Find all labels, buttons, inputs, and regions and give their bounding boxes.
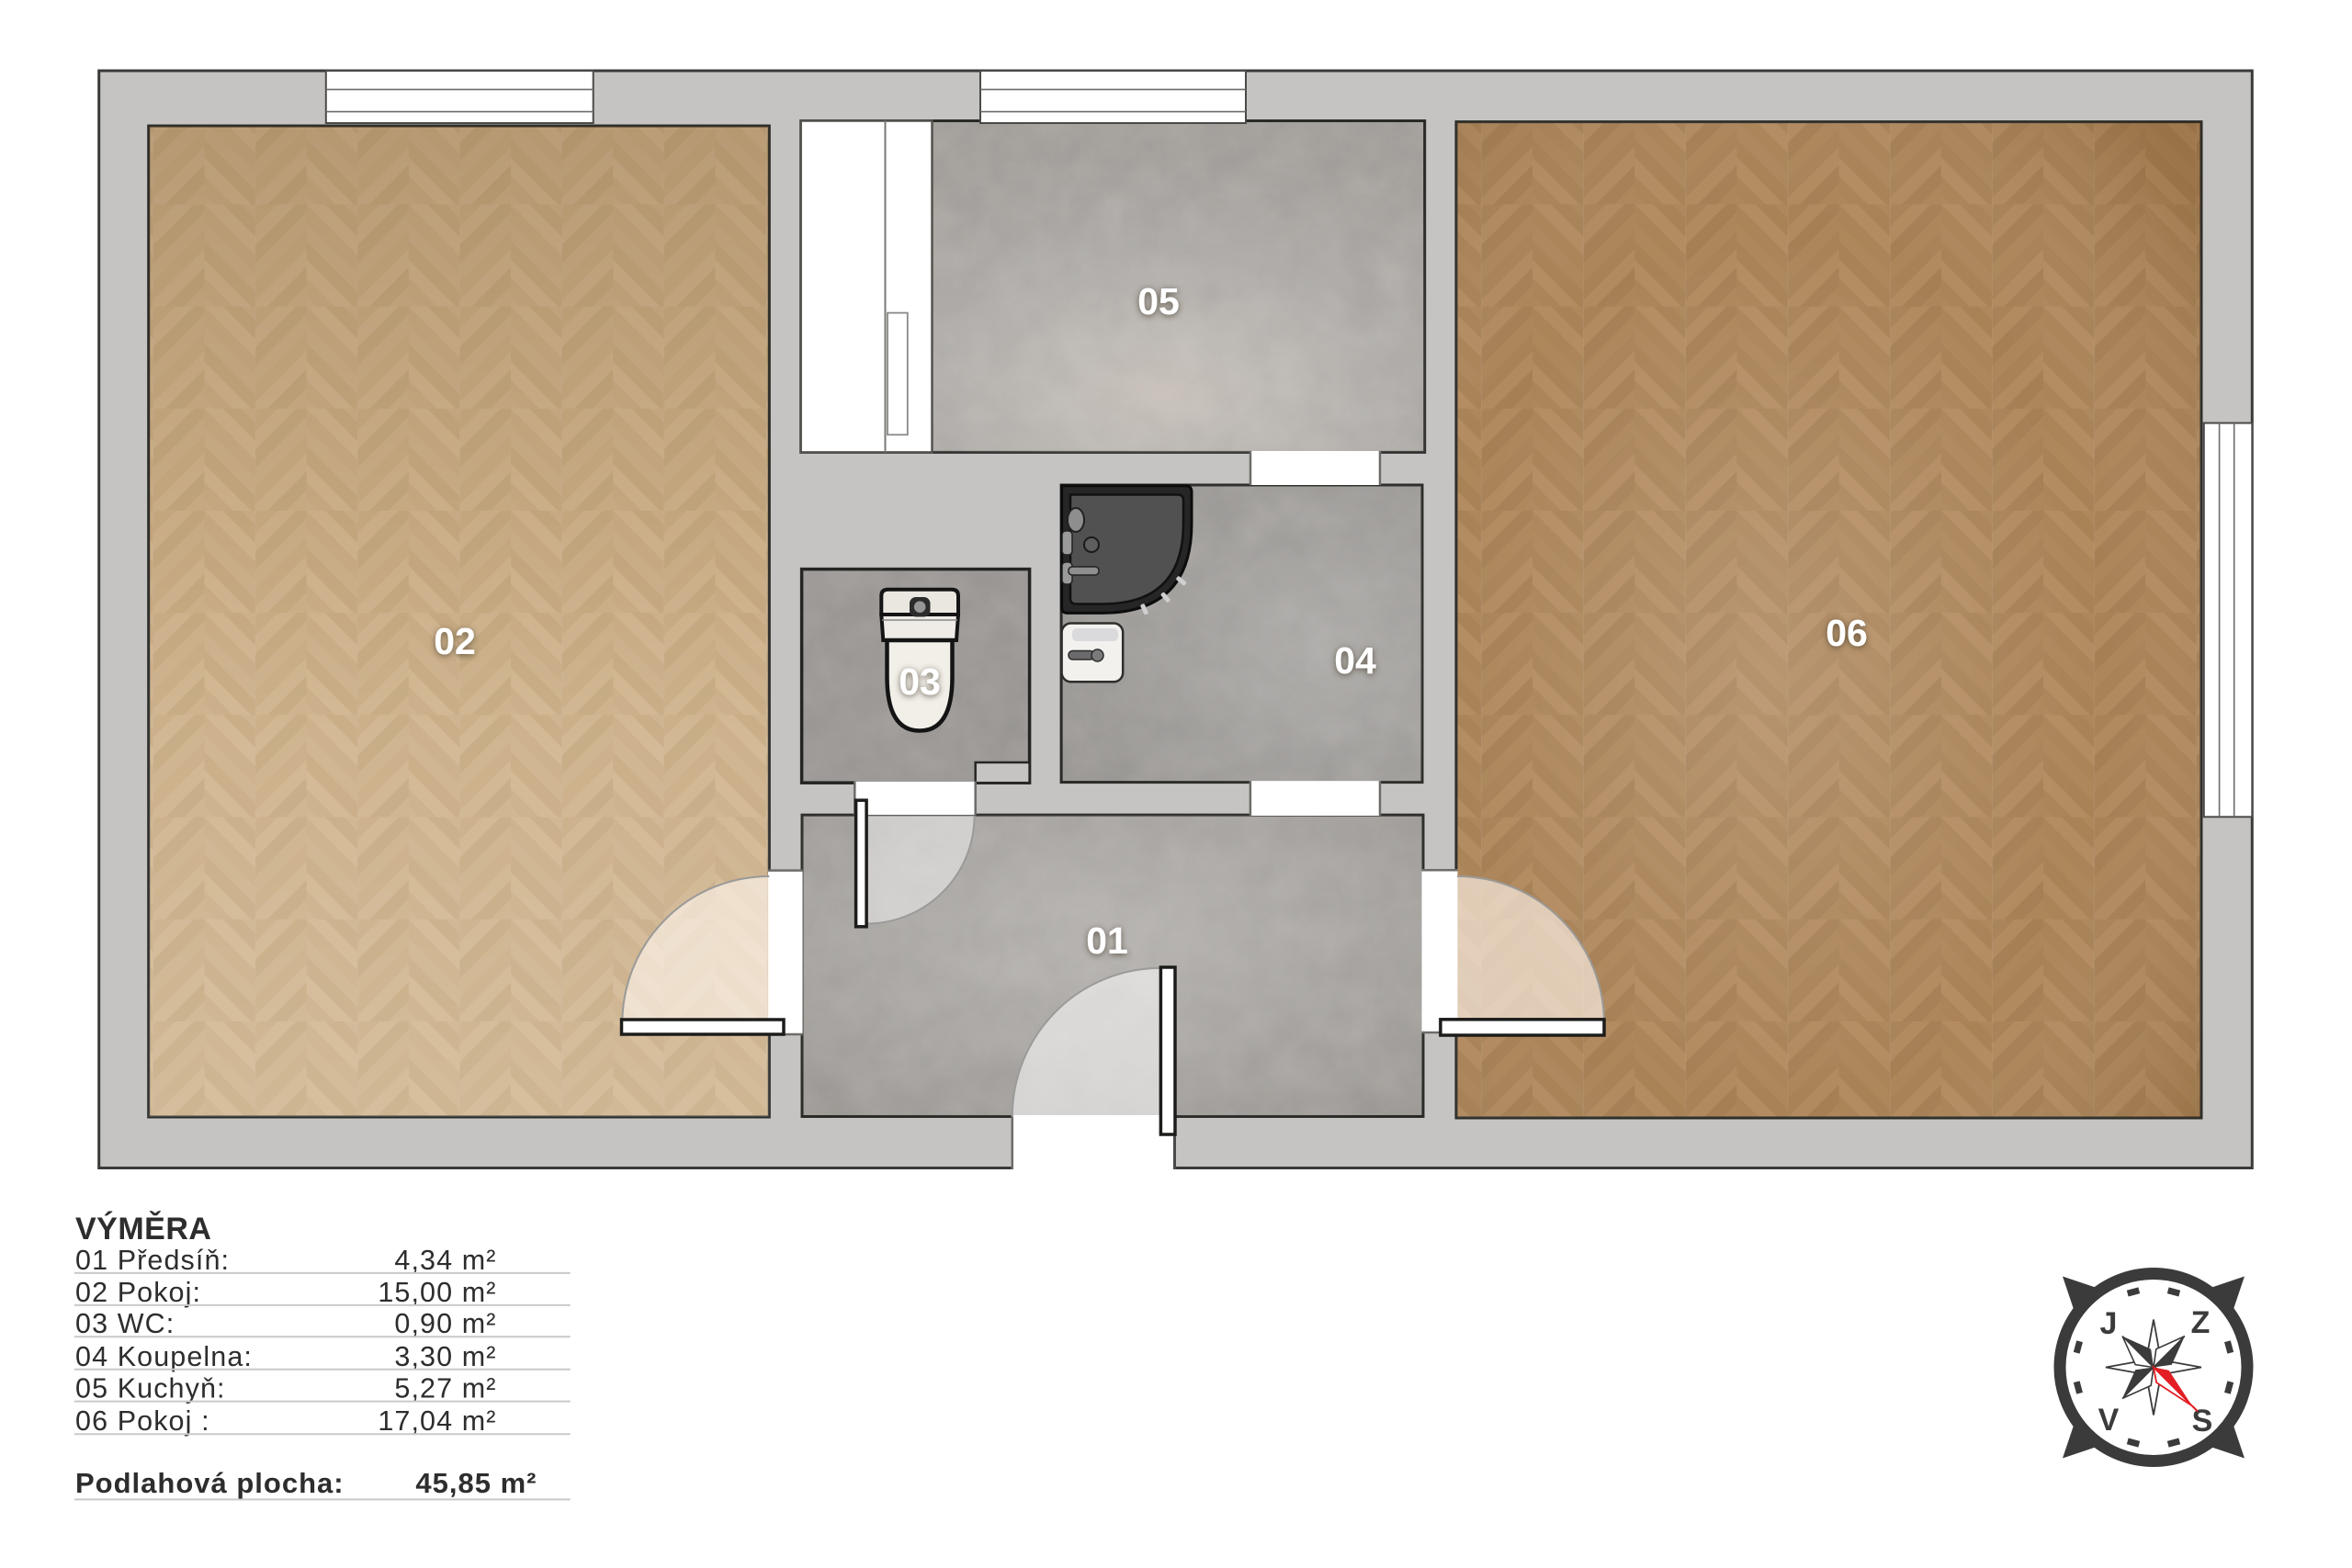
svg-text:02: 02 — [434, 620, 476, 662]
svg-text:45,85 m²: 45,85 m² — [415, 1467, 537, 1499]
svg-text:06 Pokoj :: 06 Pokoj : — [75, 1405, 210, 1437]
svg-text:0,90 m²: 0,90 m² — [394, 1308, 496, 1339]
svg-text:Podlahová plocha:: Podlahová plocha: — [75, 1467, 345, 1499]
svg-text:4,34 m²: 4,34 m² — [394, 1245, 496, 1276]
svg-text:04 Koupelna:: 04 Koupelna: — [75, 1341, 253, 1372]
svg-text:02 Pokoj:: 02 Pokoj: — [75, 1277, 201, 1308]
svg-text:03 WC:: 03 WC: — [75, 1308, 175, 1339]
svg-text:VÝMĚRA: VÝMĚRA — [75, 1212, 211, 1247]
svg-text:05 Kuchyň:: 05 Kuchyň: — [75, 1373, 226, 1404]
svg-text:5,27 m²: 5,27 m² — [394, 1373, 496, 1404]
svg-text:06: 06 — [1826, 612, 1868, 654]
svg-text:17,04 m²: 17,04 m² — [378, 1405, 496, 1437]
svg-text:Z: Z — [2191, 1305, 2211, 1340]
svg-text:05: 05 — [1137, 280, 1180, 322]
svg-text:01: 01 — [1086, 919, 1128, 962]
svg-text:3,30 m²: 3,30 m² — [394, 1341, 496, 1372]
svg-text:V: V — [2098, 1403, 2120, 1438]
svg-text:J: J — [2100, 1306, 2118, 1341]
svg-text:03: 03 — [899, 660, 941, 703]
svg-text:01 Předsíň:: 01 Předsíň: — [75, 1245, 230, 1276]
svg-text:15,00 m²: 15,00 m² — [378, 1277, 496, 1308]
svg-text:04: 04 — [1334, 639, 1376, 682]
